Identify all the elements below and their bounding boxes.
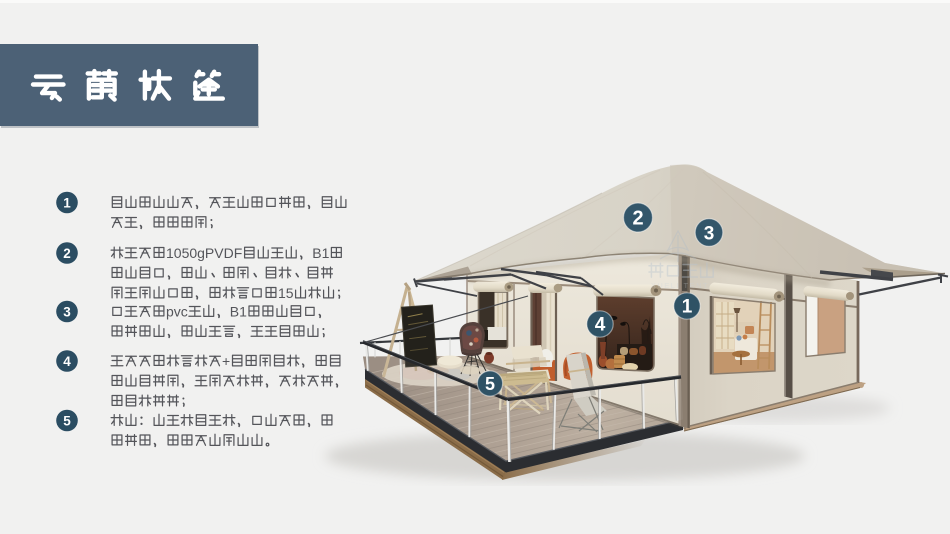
svg-text:XUELI TENT: XUELI TENT xyxy=(651,281,709,290)
svg-text:5: 5 xyxy=(485,374,495,394)
svg-text:4: 4 xyxy=(595,315,606,336)
svg-text:2: 2 xyxy=(632,208,643,230)
svg-text:1: 1 xyxy=(682,297,693,318)
svg-text:3: 3 xyxy=(704,223,715,244)
